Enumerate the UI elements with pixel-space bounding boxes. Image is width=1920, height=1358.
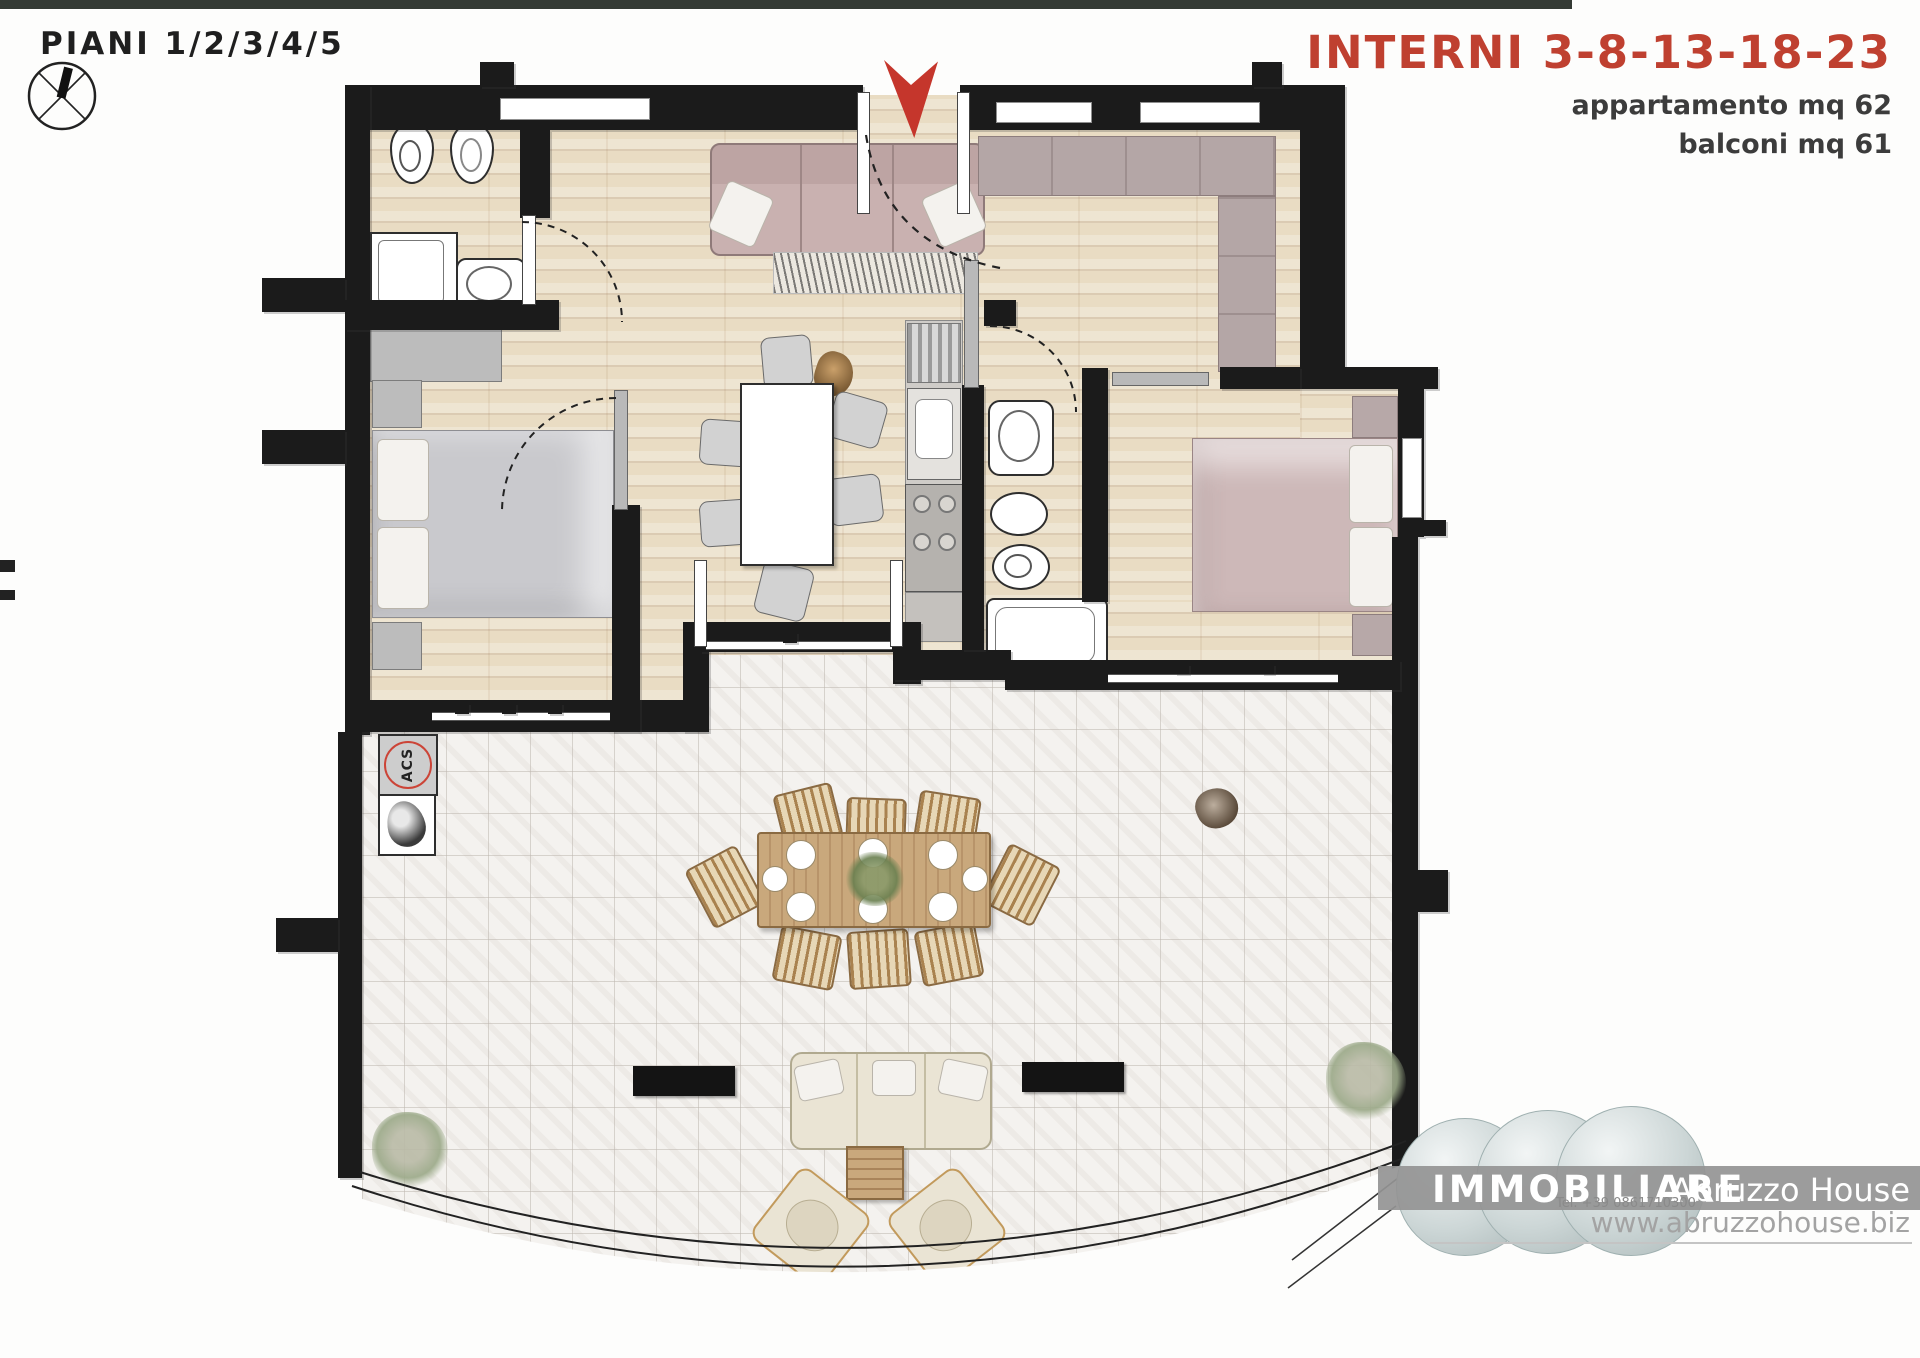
- outdoor-coffee-table: [846, 1146, 904, 1200]
- wall-stub: [1252, 62, 1282, 87]
- plate: [786, 840, 816, 870]
- window: [1402, 438, 1422, 518]
- scan-mark: [0, 590, 15, 600]
- kitchen-hood: [907, 323, 961, 383]
- wall-kitchen: [962, 385, 984, 650]
- kitchen-stove: [905, 484, 963, 592]
- dresser: [370, 326, 502, 382]
- window: [996, 102, 1092, 123]
- sliding-door-panel: [614, 390, 628, 510]
- bed-pillow: [1349, 445, 1393, 523]
- burner: [913, 533, 931, 551]
- door-frame: [522, 215, 536, 305]
- wall: [1300, 367, 1438, 389]
- kitchen-sink: [907, 388, 961, 480]
- wall-bath2: [1082, 368, 1108, 602]
- zebra-rug: [773, 252, 978, 294]
- toilet-bowl: [399, 140, 421, 172]
- window: [500, 98, 650, 120]
- window: [1140, 102, 1260, 123]
- glass-door-sill: [1108, 674, 1338, 683]
- header-right: INTERNI 3-8-13-18-23 appartamento mq 62 …: [1306, 28, 1892, 160]
- bath2-toilet: [992, 544, 1050, 590]
- sofa-divider: [924, 1054, 926, 1148]
- bed-pillow: [377, 527, 429, 609]
- wall-stub: [1424, 520, 1446, 536]
- wall-stub: [1418, 870, 1448, 912]
- dining-chair: [760, 334, 814, 390]
- wall-stub: [276, 918, 338, 952]
- wardrobe-hall-vertical: [1218, 196, 1276, 372]
- wall-bath2: [984, 300, 1016, 326]
- outdoor-chair: [846, 928, 912, 990]
- burner: [938, 495, 956, 513]
- apartment-area-label: appartamento mq 62: [1306, 90, 1892, 121]
- shower-inner: [378, 240, 444, 304]
- terrace-bench: [633, 1066, 735, 1096]
- water-heater-tank: [382, 797, 430, 851]
- mullion: [502, 703, 516, 714]
- burner: [938, 533, 956, 551]
- bed-pillow: [1349, 527, 1393, 607]
- plate: [928, 840, 958, 870]
- armchair-cushion: [909, 1189, 982, 1262]
- wall-bathroom: [520, 130, 550, 218]
- wall: [893, 650, 1011, 680]
- door-frame: [857, 92, 870, 214]
- wall-stub: [262, 278, 345, 312]
- outdoor-sofa: [790, 1052, 992, 1150]
- plate: [762, 866, 788, 892]
- door-frame: [957, 92, 970, 214]
- compass-icon: [24, 58, 100, 134]
- dining-table: [740, 383, 834, 566]
- terrace-bench: [1022, 1062, 1124, 1092]
- terrace-plant: [372, 1112, 448, 1188]
- sink-basin: [466, 266, 512, 302]
- terrace-plant: [1326, 1042, 1406, 1120]
- dining-chair: [825, 473, 884, 527]
- plate: [962, 866, 988, 892]
- acs-label: ACS: [400, 748, 416, 782]
- sofa-pillow: [872, 1060, 916, 1096]
- bidet-basin: [460, 138, 482, 172]
- glass-door-sill: [706, 641, 892, 650]
- mullion: [783, 632, 797, 643]
- sliding-door-panel: [964, 260, 979, 388]
- plate: [786, 892, 816, 922]
- sofa-pillow: [793, 1058, 845, 1103]
- kitchen-sink-basin: [915, 399, 953, 459]
- acs-ring: ACS: [384, 741, 432, 789]
- scan-mark: [0, 560, 15, 572]
- water-heater: [378, 794, 436, 856]
- armchair-cushion: [776, 1189, 849, 1262]
- bath2-sink-basin: [998, 410, 1040, 462]
- agency-name: Abruzzo House: [1671, 1171, 1910, 1209]
- sofa-pillow: [937, 1058, 989, 1103]
- floor-plan-page: PIANI 1/2/3/4/5 INTERNI 3-8-13-18-23 app…: [0, 0, 1920, 1358]
- bath2-sink: [988, 400, 1054, 476]
- mullion: [455, 703, 469, 714]
- outdoor-chair: [771, 925, 843, 992]
- wall-stub: [480, 62, 514, 87]
- table-centerpiece: [846, 852, 904, 906]
- wall-bedroom1: [612, 505, 640, 732]
- nightstand: [372, 622, 422, 670]
- wardrobe-hall: [978, 136, 1276, 196]
- nightstand: [1352, 396, 1398, 438]
- page-title-floors: PIANI 1/2/3/4/5: [40, 26, 345, 62]
- wall-bedroom2: [1220, 367, 1300, 389]
- sofa-living: [710, 143, 985, 256]
- burner: [913, 495, 931, 513]
- wall: [338, 732, 362, 1178]
- nightstand: [372, 380, 422, 428]
- bath2-bidet: [990, 492, 1048, 536]
- door-frame: [890, 560, 903, 647]
- scan-edge-strip: [0, 0, 1572, 9]
- wall: [1300, 130, 1345, 367]
- bath2-toilet-bowl: [1004, 554, 1032, 578]
- sofa-divider: [892, 145, 894, 254]
- logo-underline: [1430, 1242, 1912, 1244]
- wall: [345, 85, 370, 735]
- mullion: [548, 703, 562, 714]
- door-frame: [694, 560, 707, 647]
- bed-double-left: [372, 430, 614, 618]
- sliding-door-panel: [1112, 372, 1209, 386]
- outdoor-chair: [913, 921, 985, 988]
- acs-unit: ACS: [378, 734, 438, 796]
- plate: [928, 892, 958, 922]
- page-title-interni: INTERNI 3-8-13-18-23: [1306, 28, 1892, 78]
- bed-pillow: [377, 439, 429, 521]
- agency-website: www.abruzzohouse.biz: [1591, 1206, 1910, 1239]
- mullion: [1175, 664, 1189, 674]
- wall-stub: [262, 430, 345, 464]
- balcony-area-label: balconi mq 61: [1306, 129, 1892, 160]
- mullion: [1262, 664, 1274, 674]
- sofa-divider: [800, 145, 802, 254]
- sofa-pillow: [707, 179, 775, 249]
- bed-double-right: [1192, 438, 1398, 612]
- sofa-divider: [856, 1054, 858, 1148]
